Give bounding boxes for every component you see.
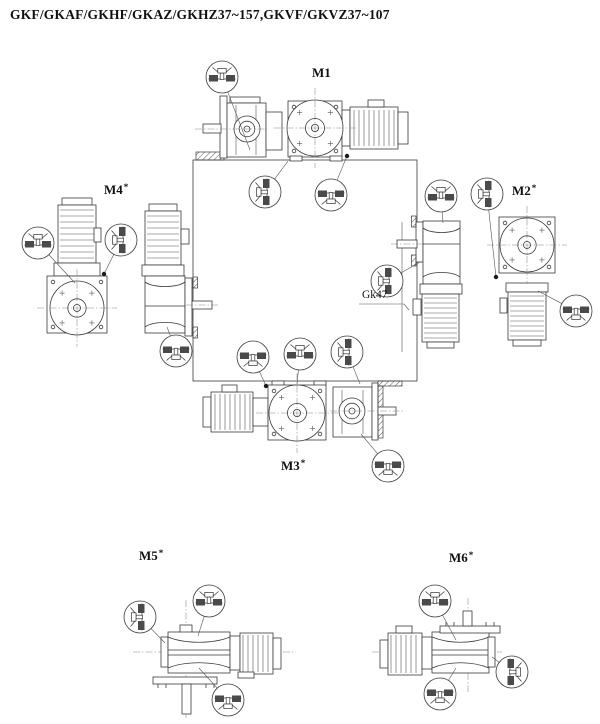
label-m2: M2*	[512, 183, 536, 199]
m4-side-view	[142, 204, 218, 338]
label-m6-mark: *	[469, 550, 474, 560]
m4-terminal-box	[94, 228, 101, 242]
m6-motor	[388, 633, 422, 675]
label-gk47: Gk47	[362, 289, 388, 301]
drain-plug-indicator	[361, 434, 404, 482]
leader-line	[275, 161, 288, 179]
leader-line	[151, 629, 165, 643]
m5-output-shaft	[182, 684, 191, 714]
m3-wall-flange	[372, 383, 378, 440]
label-m3: M3*	[281, 458, 305, 474]
drain-plug-indicator	[199, 668, 244, 716]
shaft-hubs	[195, 116, 404, 424]
label-m1: M1	[312, 65, 332, 81]
leader-dot	[494, 275, 498, 279]
m5-output-flange	[153, 677, 217, 684]
leader-line	[104, 254, 114, 274]
level-plug-indicator	[249, 161, 288, 208]
drain-plug-indicator	[315, 154, 349, 211]
m3-motor	[211, 392, 253, 432]
label-m2-mark: *	[532, 183, 537, 193]
m2-terminal-box	[413, 299, 421, 315]
m6-output-shaft	[463, 611, 472, 626]
m1-input-shaft	[203, 124, 221, 133]
level-plug-indicator	[471, 178, 503, 279]
leader-line	[489, 210, 496, 277]
mounting-position-diagram-page: GKF/GKAF/GKHF/GKAZ/GKHZ37~157,GKVF/GKVZ3…	[0, 0, 600, 724]
leader-dot	[264, 384, 268, 388]
m6-terminal-box	[396, 626, 412, 633]
leader-dot	[345, 154, 349, 158]
m5-terminal-box	[238, 672, 254, 678]
drain-plug-indicator	[424, 668, 456, 710]
label-m3-mark: *	[301, 458, 306, 468]
level-plug-indicator	[331, 336, 363, 384]
vent-plug-indicator	[284, 338, 316, 384]
level-plug-indicator	[102, 224, 137, 276]
flange-faces	[37, 88, 567, 453]
level-plug-indicator	[492, 656, 528, 688]
label-m5: M5*	[139, 548, 163, 564]
gk47-underline	[359, 304, 409, 310]
label-m4: M4*	[104, 182, 128, 198]
mounting-positions-drawing	[0, 0, 600, 724]
vent-plug-indicator	[193, 585, 225, 636]
m5-gearbox	[168, 632, 230, 673]
m3-terminal-box	[222, 385, 237, 392]
label-m4-mark: *	[124, 182, 129, 192]
m4-wall-flange	[185, 278, 192, 336]
m6-gearbox	[432, 632, 489, 673]
label-m6: M6*	[449, 550, 473, 566]
level-plug-indicator	[124, 601, 165, 643]
vent-plug-indicator	[425, 180, 457, 223]
label-m5-mark: *	[159, 548, 164, 558]
leader-dot	[102, 272, 106, 276]
leader-line	[353, 367, 360, 384]
leader-line	[260, 372, 266, 386]
m1-terminal-box	[368, 100, 384, 107]
